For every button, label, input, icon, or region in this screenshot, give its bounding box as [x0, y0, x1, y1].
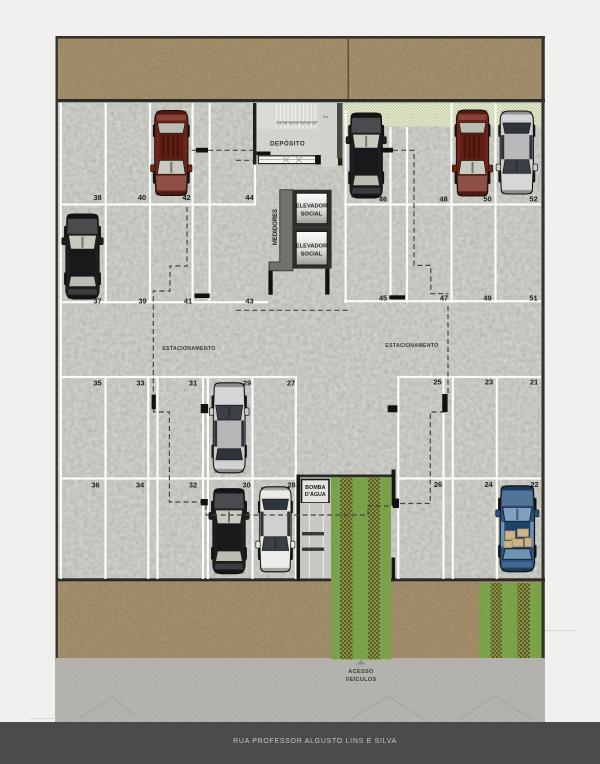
svg-text:41: 41 — [184, 297, 192, 306]
svg-text:38: 38 — [93, 193, 101, 202]
svg-text:25: 25 — [433, 378, 441, 387]
svg-text:DEPÓSITO: DEPÓSITO — [270, 140, 305, 148]
svg-text:27: 27 — [287, 379, 295, 388]
svg-text:MEDIDORES: MEDIDORES — [273, 209, 279, 245]
svg-text:21: 21 — [530, 378, 538, 387]
svg-text:VEÍCULOS: VEÍCULOS — [346, 675, 377, 683]
svg-text:6 m: 6 m — [323, 115, 329, 119]
svg-text:49: 49 — [483, 294, 491, 303]
svg-text:30: 30 — [242, 481, 250, 490]
svg-text:48: 48 — [439, 195, 447, 204]
svg-text:34: 34 — [136, 481, 145, 490]
svg-text:ELEVADOR: ELEVADOR — [296, 204, 327, 210]
svg-text:47: 47 — [440, 294, 448, 303]
svg-text:SOCIAL: SOCIAL — [301, 212, 323, 218]
svg-text:52: 52 — [529, 195, 537, 204]
svg-text:04 05 06 07 08 09 10: 04 05 06 07 08 09 10 — [277, 122, 316, 126]
svg-text:32: 32 — [189, 481, 197, 490]
svg-text:39: 39 — [138, 297, 146, 306]
svg-text:ESTACIONAMENTO: ESTACIONAMENTO — [385, 343, 438, 349]
svg-text:31: 31 — [189, 379, 197, 388]
svg-text:43: 43 — [245, 297, 253, 306]
svg-text:45: 45 — [379, 294, 387, 303]
svg-text:RUA PROFESSOR ALGUSTO LINS E S: RUA PROFESSOR ALGUSTO LINS E SILVA — [233, 738, 397, 745]
svg-text:26: 26 — [434, 480, 442, 489]
svg-text:24: 24 — [484, 480, 493, 489]
svg-text:ESTACIONAMENTO: ESTACIONAMENTO — [162, 346, 215, 352]
svg-text:ACESSO: ACESSO — [348, 669, 374, 675]
svg-text:SOCIAL: SOCIAL — [301, 252, 323, 258]
svg-text:40: 40 — [138, 193, 146, 202]
svg-text:23: 23 — [485, 378, 493, 387]
svg-text:ELEVADOR: ELEVADOR — [296, 244, 327, 250]
svg-text:44: 44 — [245, 193, 254, 202]
svg-text:D'ÁGUA: D'ÁGUA — [305, 491, 326, 498]
svg-text:BOMBA: BOMBA — [305, 485, 325, 491]
svg-text:33: 33 — [136, 379, 144, 388]
svg-text:35: 35 — [93, 379, 101, 388]
svg-text:51: 51 — [529, 294, 537, 303]
svg-text:36: 36 — [91, 481, 99, 490]
